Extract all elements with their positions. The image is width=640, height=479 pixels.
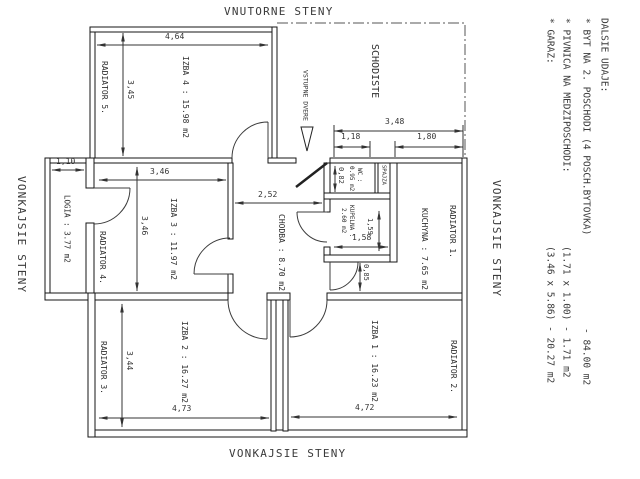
label-external-walls-right: VONKAJSIE STENY [491, 180, 502, 297]
room-label-izba4: IZBA 4 : 15.98 m2 [181, 56, 189, 138]
room-label-kupelna-line2: 2.60 m2 [340, 208, 346, 233]
doors-group [94, 122, 358, 339]
label-external-walls-left: VONKAJSIE STENY [16, 176, 27, 293]
door-kuchyna [330, 262, 358, 290]
note-flat: * BYT NA 2. POSCHODI (4 POSCH.BYTOVKA) [581, 18, 591, 235]
wall [375, 163, 378, 193]
note-garage: * GARAZ: [545, 18, 555, 64]
note-cellar-area: (1.71 x 1.00) - 1.71 m2 [561, 246, 571, 378]
wall [228, 163, 233, 239]
dim-3-46-v: 3,46 [140, 216, 148, 235]
wall [268, 158, 296, 163]
room-label-izba3: IZBA 3 : 11.97 m2 [169, 198, 177, 280]
wall [86, 158, 94, 188]
room-label-spajza: SPAJZA [380, 165, 386, 185]
dim-1-18: 1,18 [341, 133, 360, 141]
wall [45, 158, 50, 300]
wall [272, 27, 277, 163]
radiator-label-1: RADIATOR 1. [448, 205, 456, 258]
dim-3-45: 3,45 [126, 80, 134, 99]
wall [88, 430, 467, 437]
dim-4-64: 4,64 [165, 33, 184, 41]
door-izba1 [290, 300, 327, 337]
radiator-label-5: RADIATOR 5. [100, 61, 108, 114]
room-label-logia: LOGIA : 3.77 m2 [63, 195, 71, 263]
wall [327, 293, 467, 300]
floor-plan-drawing [0, 0, 640, 479]
wall [267, 293, 290, 300]
dim-3-48: 3,48 [385, 118, 404, 126]
door-izba4 [232, 122, 268, 158]
wall [86, 223, 94, 300]
room-label-chodba: CHODBA : 8.70 m2 [277, 214, 285, 291]
label-external-walls-bottom: VONKAJSIE STENY [229, 448, 346, 459]
door-logia [94, 188, 130, 224]
wall [228, 274, 233, 293]
label-staircase: SCHODISTE [369, 44, 379, 98]
dimension-lines-group [52, 33, 463, 427]
label-entrance-door: VSTUPNE DVERE [302, 70, 309, 121]
room-label-wc-line2: 0.95 m2 [348, 166, 354, 191]
note-flat-area: - 84.00 m2 [581, 328, 591, 385]
dim-4-73: 4,73 [172, 405, 191, 413]
floor-plan-canvas: VNUTORNE STENY VONKAJSIE STENY VONKAJSIE… [0, 0, 640, 479]
wall [90, 27, 95, 163]
radiator-label-3: RADIATOR 3. [99, 341, 107, 394]
room-label-izba1: IZBA 1 : 16.23 m2 [370, 320, 378, 402]
dim-4-72: 4,72 [355, 404, 374, 412]
dim-3-46-h: 3,46 [150, 168, 169, 176]
wall [324, 193, 390, 199]
wall [271, 300, 276, 431]
wall [45, 293, 228, 300]
dim-1-80: 1,80 [417, 133, 436, 141]
dim-0-82: 0,82 [337, 167, 344, 184]
door-kupelna [297, 212, 327, 242]
dim-2-52: 2,52 [258, 191, 277, 199]
wall [390, 163, 397, 262]
entrance-arrow-icon [301, 127, 313, 151]
door-izba3 [194, 238, 230, 274]
room-label-wc-line1: WC : [356, 168, 362, 182]
wall [462, 158, 467, 437]
notes-title: DALSIE UDAJE: [599, 18, 609, 92]
dim-0-85: 0,85 [362, 264, 369, 281]
radiator-label-2: RADIATOR 2. [449, 340, 457, 393]
entry-door-leaf [296, 163, 327, 187]
dim-1-58: 1,58 [352, 234, 371, 242]
dim-1-59: 1,59 [366, 218, 373, 235]
note-cellar: * PIVNICA NA MEDZIPOSCHODI: [561, 18, 571, 172]
dim-1-10: 1,10 [56, 158, 75, 166]
radiator-label-4: RADIATOR 4. [98, 231, 106, 284]
label-internal-walls: VNUTORNE STENY [224, 6, 334, 17]
wall [330, 158, 467, 163]
wall [88, 293, 95, 437]
wall [283, 300, 288, 431]
room-label-izba2: IZBA 2 : 16.27 m2 [180, 321, 188, 403]
door-izba2 [228, 300, 267, 339]
room-label-kuchyna: KUCHYNA : 7.65 m2 [420, 208, 428, 290]
wall [324, 255, 397, 262]
wall [324, 163, 330, 212]
note-garage-area: (3.46 x 5.86) - 20.27 m2 [545, 246, 555, 383]
dim-3-44: 3,44 [125, 351, 133, 370]
